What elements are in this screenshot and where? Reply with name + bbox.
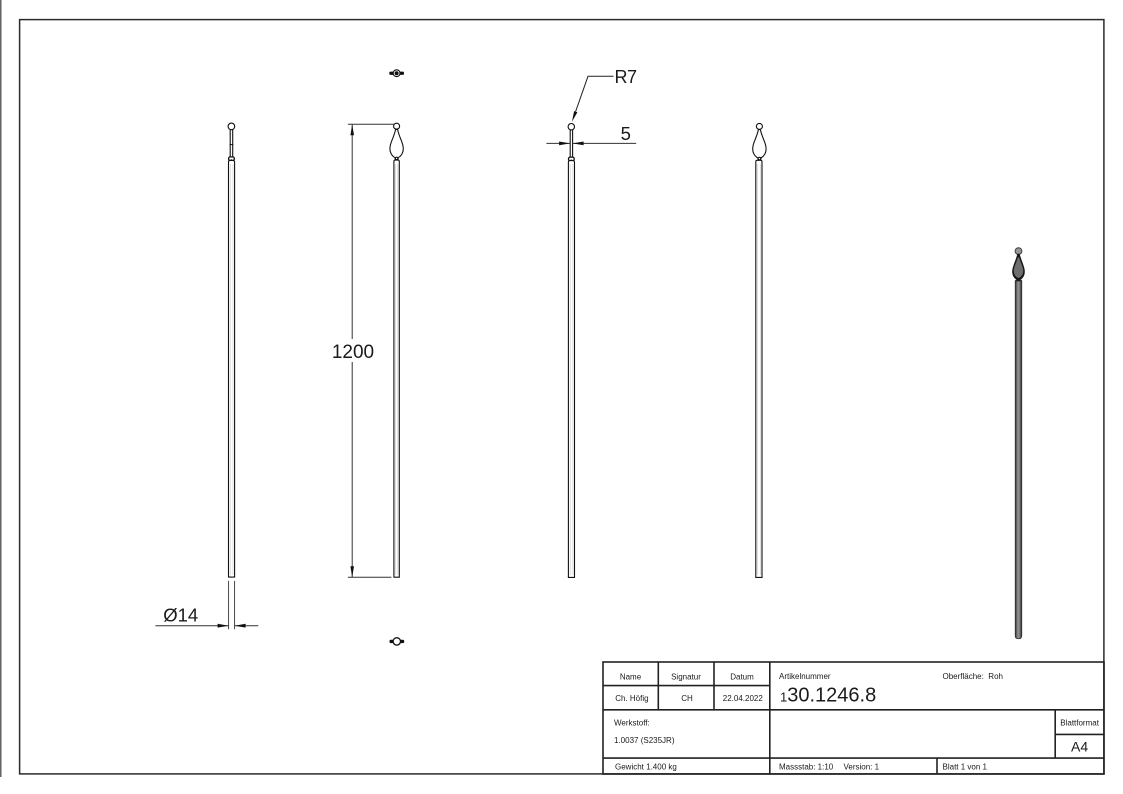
svg-text:130.1246.8: 130.1246.8 — [780, 685, 876, 707]
svg-text:Ch. Höfig: Ch. Höfig — [615, 694, 648, 703]
svg-text:Ø14: Ø14 — [163, 605, 198, 626]
svg-text:Oberfläche: Roh: Oberfläche: Roh — [943, 672, 1003, 681]
svg-text:Gewicht 1.400 kg: Gewicht 1.400 kg — [615, 763, 677, 772]
svg-text:5: 5 — [621, 123, 631, 144]
svg-text:Massstab: 1:10Version: 1: Massstab: 1:10Version: 1 — [779, 763, 880, 772]
svg-text:CH: CH — [681, 694, 693, 703]
svg-text:Werkstoff:: Werkstoff: — [614, 719, 650, 728]
svg-text:Artikelnummer: Artikelnummer — [779, 672, 831, 681]
svg-text:1.0037 (S235JR): 1.0037 (S235JR) — [614, 736, 675, 745]
svg-text:Signatur: Signatur — [671, 672, 701, 681]
svg-text:A4: A4 — [1071, 738, 1088, 754]
svg-text:1200: 1200 — [332, 342, 374, 363]
svg-text:22.04.2022: 22.04.2022 — [723, 694, 764, 703]
svg-text:Datum: Datum — [730, 672, 754, 681]
svg-text:R7: R7 — [615, 67, 637, 87]
svg-text:Blatt 1 von 1: Blatt 1 von 1 — [943, 763, 988, 772]
svg-text:Blattformat: Blattformat — [1060, 719, 1099, 728]
svg-text:Name: Name — [620, 672, 642, 681]
